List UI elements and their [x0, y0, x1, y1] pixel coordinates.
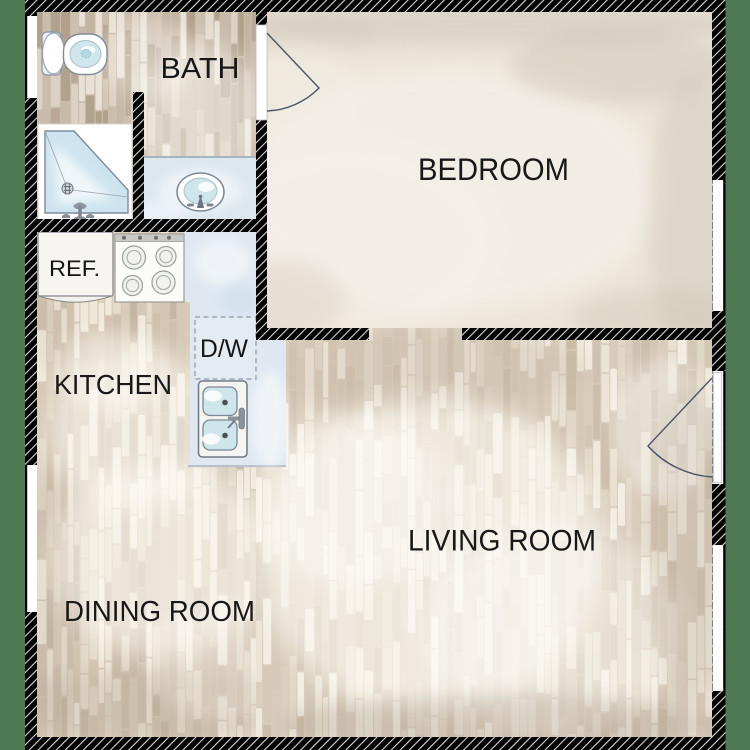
- svg-text:LIVING ROOM: LIVING ROOM: [408, 525, 596, 558]
- svg-text:D/W: D/W: [200, 335, 248, 363]
- svg-text:BATH: BATH: [161, 53, 240, 85]
- svg-text:REF.: REF.: [49, 256, 100, 281]
- svg-text:DINING ROOM: DINING ROOM: [64, 596, 255, 628]
- svg-text:BEDROOM: BEDROOM: [418, 151, 569, 187]
- svg-text:KITCHEN: KITCHEN: [54, 369, 172, 400]
